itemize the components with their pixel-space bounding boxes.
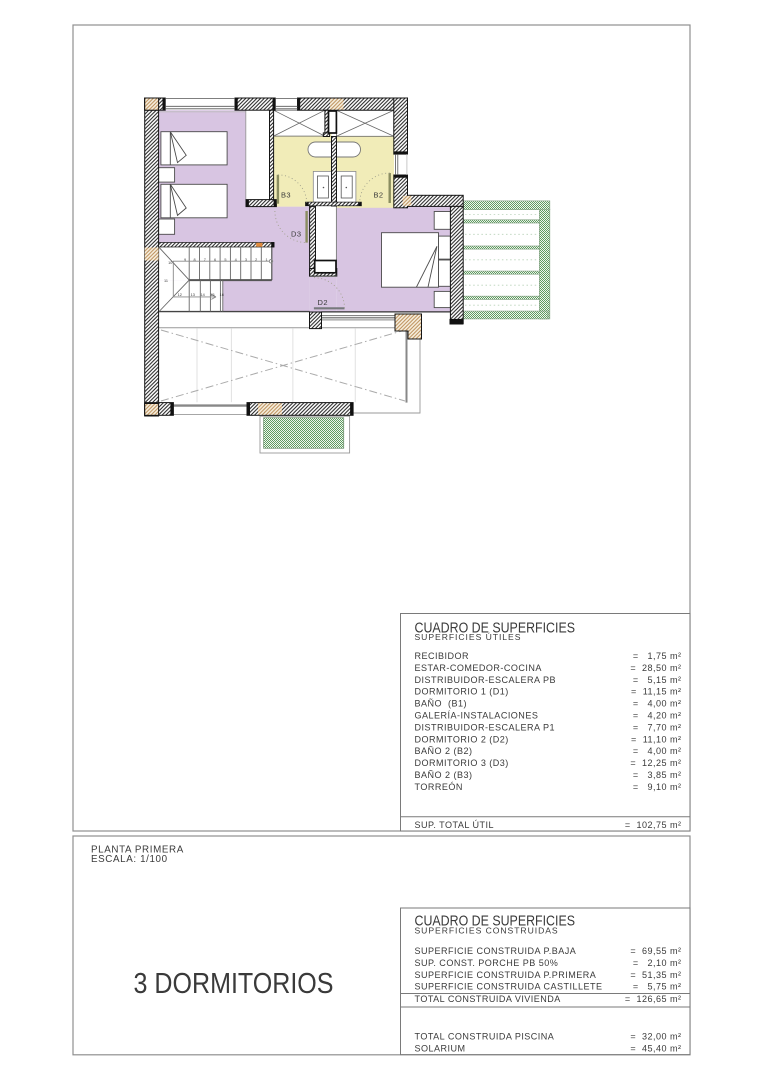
svg-text:SUPERFICIE CONSTRUIDA P.PRIMER: SUPERFICIE CONSTRUIDA P.PRIMERA	[415, 970, 597, 980]
svg-text:= 126,65 m²: = 126,65 m²	[625, 994, 682, 1004]
svg-text:10: 10	[168, 261, 172, 265]
svg-text:DORMITORIO 2 (D2): DORMITORIO 2 (D2)	[415, 734, 509, 744]
svg-text:= 5,75 m²: = 5,75 m²	[633, 982, 682, 992]
svg-text:= 2,10 m²: = 2,10 m²	[633, 958, 682, 968]
svg-text:SUPERFICIES ÚTILES: SUPERFICIES ÚTILES	[415, 632, 522, 642]
svg-text:BAÑO (B1): BAÑO (B1)	[415, 699, 467, 709]
svg-text:= 4,20 m²: = 4,20 m²	[633, 711, 682, 721]
svg-text:B2: B2	[374, 191, 384, 200]
svg-text:SUP. CONST. PORCHE PB 50%: SUP. CONST. PORCHE PB 50%	[415, 958, 559, 968]
svg-text:D2: D2	[318, 298, 328, 307]
svg-text:11: 11	[164, 279, 168, 283]
svg-text:= 4,00 m²: = 4,00 m²	[633, 746, 682, 756]
svg-text:= 5,15 m²: = 5,15 m²	[633, 675, 682, 685]
svg-text:4: 4	[235, 258, 237, 262]
svg-text:= 51,35 m²: = 51,35 m²	[630, 970, 681, 980]
svg-text:BAÑO 2 (B2): BAÑO 2 (B2)	[415, 746, 473, 756]
svg-text:16: 16	[220, 293, 224, 297]
svg-text:= 4,00 m²: = 4,00 m²	[633, 699, 682, 709]
svg-text:6: 6	[214, 258, 216, 262]
svg-text:ESTAR-COMEDOR-COCINA: ESTAR-COMEDOR-COCINA	[415, 663, 543, 673]
svg-text:= 32,00 m²: = 32,00 m²	[630, 1032, 681, 1042]
svg-text:SUPERFICIES CONSTRUIDAS: SUPERFICIES CONSTRUIDAS	[415, 926, 559, 936]
svg-text:= 3,85 m²: = 3,85 m²	[633, 770, 682, 780]
svg-text:D3: D3	[291, 229, 301, 238]
svg-text:SUPERFICIE CONSTRUIDA P.BAJA: SUPERFICIE CONSTRUIDA P.BAJA	[415, 946, 577, 956]
svg-text:SUP. TOTAL ÚTIL: SUP. TOTAL ÚTIL	[415, 820, 494, 830]
svg-text:= 69,55 m²: = 69,55 m²	[630, 946, 681, 956]
svg-text:DORMITORIO 1 (D1): DORMITORIO 1 (D1)	[415, 687, 509, 697]
svg-text:7: 7	[204, 258, 206, 262]
svg-text:14: 14	[200, 293, 204, 297]
svg-text:13: 13	[191, 293, 195, 297]
svg-text:12: 12	[178, 293, 182, 297]
svg-text:9: 9	[184, 258, 186, 262]
svg-text:BAÑO 2 (B3): BAÑO 2 (B3)	[415, 770, 473, 780]
svg-text:= 28,50 m²: = 28,50 m²	[630, 663, 681, 673]
svg-text:DORMITORIO 3 (D3): DORMITORIO 3 (D3)	[415, 758, 509, 768]
svg-text:3: 3	[245, 258, 247, 262]
svg-text:= 45,40 m²: = 45,40 m²	[630, 1043, 681, 1053]
svg-text:SOLARIUM: SOLARIUM	[415, 1043, 466, 1053]
svg-text:RECIBIDOR: RECIBIDOR	[415, 651, 470, 661]
svg-text:= 11,15 m²: = 11,15 m²	[631, 687, 682, 697]
svg-text:B3: B3	[281, 191, 291, 200]
svg-text:3 DORMITORIOS: 3 DORMITORIOS	[134, 968, 334, 1000]
svg-text:TORREÓN: TORREÓN	[415, 782, 463, 792]
svg-text:2: 2	[255, 258, 257, 262]
svg-text:ESCALA: 1/100: ESCALA: 1/100	[91, 854, 168, 865]
svg-text:GALERÍA-INSTALACIONES: GALERÍA-INSTALACIONES	[415, 711, 539, 721]
svg-text:TOTAL CONSTRUIDA PISCINA: TOTAL CONSTRUIDA PISCINA	[415, 1032, 555, 1042]
svg-text:DISTRIBUIDOR-ESCALERA PB: DISTRIBUIDOR-ESCALERA PB	[415, 675, 556, 685]
svg-text:15: 15	[210, 293, 214, 297]
svg-text:SUPERFICIE CONSTRUIDA CASTILLE: SUPERFICIE CONSTRUIDA CASTILLETE	[415, 982, 603, 992]
svg-text:= 12,25 m²: = 12,25 m²	[630, 758, 681, 768]
svg-text:DISTRIBUIDOR-ESCALERA P1: DISTRIBUIDOR-ESCALERA P1	[415, 722, 555, 732]
svg-text:5: 5	[224, 258, 226, 262]
svg-text:TOTAL CONSTRUIDA VIVIENDA: TOTAL CONSTRUIDA VIVIENDA	[415, 994, 562, 1004]
svg-text:1: 1	[265, 258, 267, 262]
svg-text:8: 8	[193, 258, 195, 262]
svg-text:= 1,75 m²: = 1,75 m²	[633, 651, 682, 661]
svg-text:= 9,10 m²: = 9,10 m²	[633, 782, 682, 792]
svg-text:= 7,70 m²: = 7,70 m²	[633, 722, 682, 732]
svg-text:= 11,10 m²: = 11,10 m²	[631, 734, 682, 744]
svg-text:= 102,75 m²: = 102,75 m²	[625, 820, 682, 830]
